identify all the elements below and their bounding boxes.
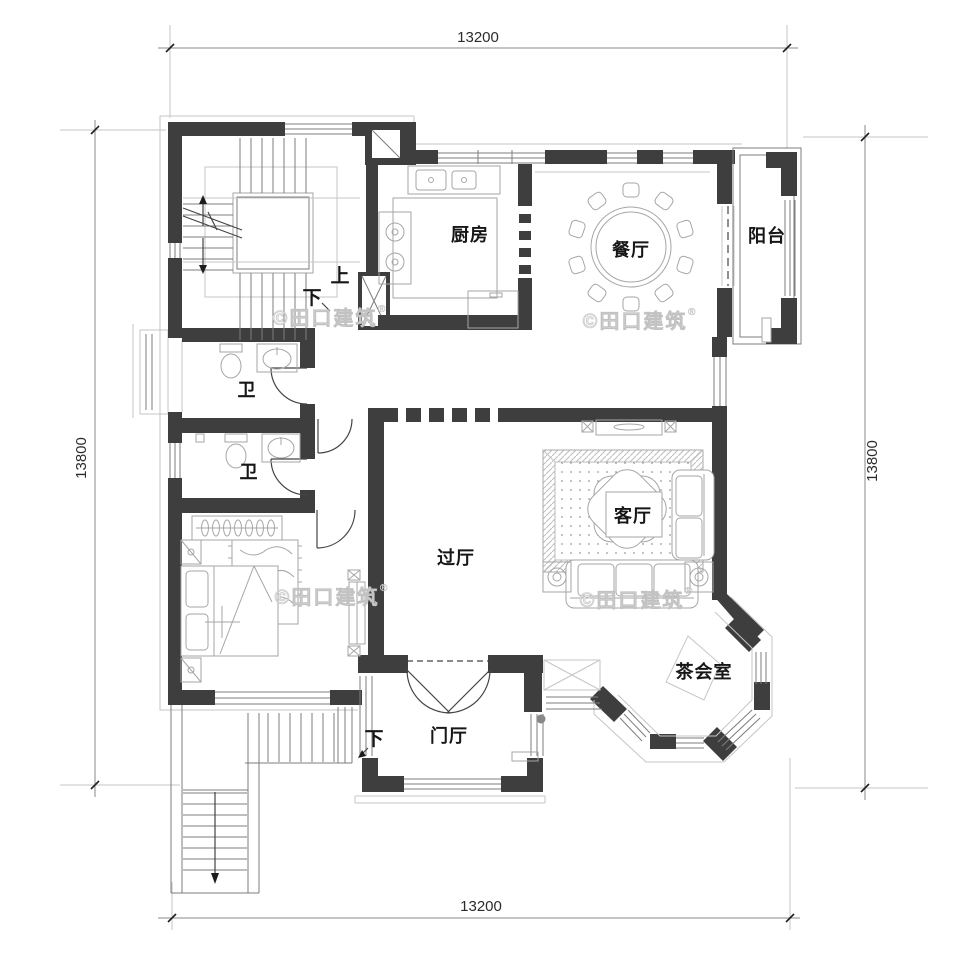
door-foyer-double: [407, 661, 490, 713]
door-bath2: [271, 459, 307, 495]
svg-text:©田口建筑: ©田口建筑: [580, 588, 685, 612]
svg-text:®: ®: [685, 586, 693, 597]
window-bedroom-bottom: [215, 692, 330, 704]
dimension-annotations: 13200 13200 13800 13800: [60, 25, 928, 930]
window-dining-top-2: [663, 153, 693, 163]
dimension-bottom: 13200: [460, 898, 502, 915]
label-bath2: 卫: [240, 462, 259, 482]
door-hall-corridor: [318, 419, 352, 453]
label-dining: 餐厅: [611, 239, 650, 260]
tv-cabinet: [596, 420, 662, 435]
bath1-fixtures: [220, 344, 297, 378]
door-balcony-sliding: [722, 206, 734, 286]
balcony-drain: [762, 318, 771, 342]
window-left-small: [170, 243, 180, 258]
door-bath1: [271, 368, 307, 404]
svg-text:©田口建筑: ©田口建筑: [275, 585, 380, 609]
label-stairs-down-exterior: 下: [364, 729, 383, 750]
label-hall: 过厅: [437, 547, 475, 568]
dimension-top: 13200: [457, 29, 499, 46]
svg-text:®: ®: [688, 307, 696, 318]
kitchen-fixtures: [379, 166, 518, 328]
label-stairs-down: 下: [302, 288, 321, 309]
dimension-left: 13800: [73, 437, 90, 479]
dimension-right: 13800: [864, 440, 881, 482]
exterior-stairs: [171, 705, 352, 893]
svg-text:®: ®: [380, 583, 388, 594]
door-bedroom: [317, 510, 355, 548]
watermark: ©田口建筑 ®: [580, 586, 693, 612]
svg-text:©田口建筑: ©田口建筑: [583, 309, 688, 333]
label-stairs-up: 上: [330, 265, 349, 287]
sofa-right: [672, 470, 714, 560]
window-living-right: [714, 357, 726, 406]
label-foyer: 门厅: [430, 725, 468, 746]
window-stair-top: [285, 124, 352, 134]
toilet-tank: [220, 344, 242, 352]
bed: [181, 566, 278, 656]
floor-plan-canvas: 13200 13200 13800 13800: [0, 0, 960, 960]
watermark: ©田口建筑 ®: [275, 583, 388, 609]
label-kitchen: 厨房: [451, 224, 489, 245]
label-bath1: 卫: [238, 380, 257, 400]
window-kitchen-top: [438, 150, 545, 164]
svg-text:®: ®: [378, 304, 386, 315]
window-dining-top-1: [607, 153, 637, 163]
window-bath2-left: [170, 443, 180, 478]
watermark: ©田口建筑 ®: [583, 307, 696, 333]
watermark: ©田口建筑 ®: [273, 304, 386, 330]
label-balcony: 阳台: [748, 225, 786, 246]
floor-drain: [196, 434, 204, 442]
toilet-tank: [225, 434, 247, 442]
toilet-bowl: [221, 354, 241, 378]
label-living: 客厅: [614, 505, 652, 526]
svg-text:©田口建筑: ©田口建筑: [273, 306, 378, 330]
porch-column: [537, 715, 546, 724]
label-tea-room: 茶会室: [676, 661, 733, 682]
balcony-structure: [733, 148, 801, 344]
kitchen-counter: [393, 198, 497, 298]
